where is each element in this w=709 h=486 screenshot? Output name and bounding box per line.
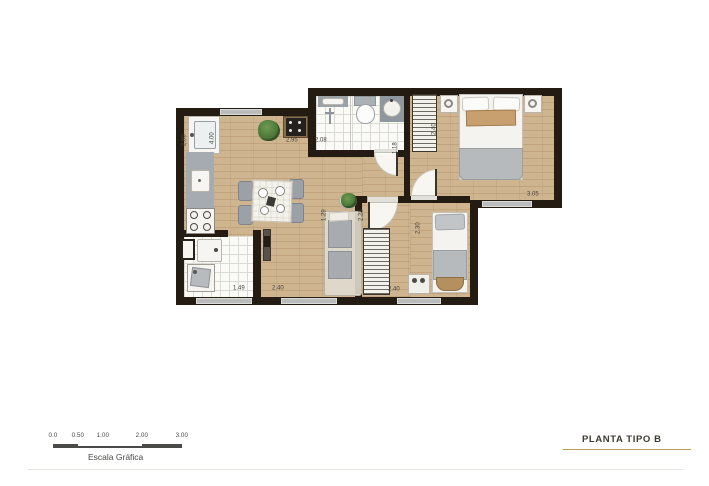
plant-icon: [258, 120, 280, 141]
stove-burner-icon: [203, 211, 211, 219]
title-underline: [563, 449, 691, 450]
bedside-rug: [408, 274, 430, 294]
bed-blanket: [459, 148, 523, 180]
shower-divider: [350, 96, 351, 150]
plan-title: PLANTA TIPO B: [582, 434, 662, 445]
kitchen-knob-icon: [198, 179, 201, 182]
plate-icon: [276, 204, 285, 213]
single-bed-blanket: [433, 250, 467, 280]
wall-bathroom-left: [308, 88, 316, 157]
scale-tick-label: 3.00: [176, 432, 188, 438]
slipper-icon: [420, 278, 425, 283]
dimension-label: 1.29: [321, 209, 328, 221]
dimension-label: 2.40: [272, 285, 284, 292]
pillow-icon: [435, 213, 466, 230]
dimension-label: 2.25: [358, 209, 365, 221]
service-cabinet: [181, 239, 195, 260]
cooktop-burner-icon: [298, 121, 301, 124]
bathroom-door-leaf: [396, 152, 398, 176]
scale-bar-segment: [53, 444, 78, 448]
sofa-cushion: [328, 251, 352, 279]
dimension-label: 1.49: [233, 285, 245, 292]
dimension-label: 2.40: [388, 286, 400, 293]
plate-icon: [275, 186, 285, 196]
single-bed-footboard: [436, 277, 464, 291]
stove-burner-icon: [190, 211, 198, 219]
cooktop-burner-icon: [298, 129, 301, 132]
washer-knob-icon: [193, 270, 197, 274]
master-door-leaf: [435, 169, 437, 196]
plate-icon: [260, 206, 269, 215]
dimension-label: 2.80: [181, 134, 188, 146]
lamp-icon: [444, 99, 453, 108]
kitchen-faucet-icon: [190, 133, 194, 137]
dimension-label: 2.40: [431, 123, 438, 135]
scale-tick-label: 0.0: [48, 432, 57, 438]
scale-bar-segment: [142, 444, 182, 448]
scale-tick-label: 2.00: [136, 432, 148, 438]
floor-plan-page: 2.80 4.00 2.95 2.08 1.18 2.40 3.05 1.29 …: [0, 0, 709, 486]
scale-tick-label: 0.50: [72, 432, 84, 438]
wall-bathroom-bottom-a: [308, 150, 374, 157]
sofa-cushion: [328, 220, 352, 248]
window-living: [281, 298, 337, 304]
dimension-label: 2.30: [415, 222, 422, 234]
dimension-label: 2.95: [286, 137, 298, 144]
stove-burner-icon: [203, 223, 211, 231]
cooktop-burner-icon: [289, 121, 292, 124]
shower-arm-icon: [325, 112, 334, 114]
slipper-icon: [412, 278, 417, 283]
towel-icon: [322, 98, 344, 105]
page-rule: [28, 469, 683, 470]
window-service: [196, 298, 252, 304]
dimension-label: 1.18: [392, 142, 399, 154]
bedroom2-wardrobe: [363, 228, 390, 295]
dimension-label: 2.08: [315, 137, 327, 144]
lamp-icon: [528, 99, 537, 108]
plant-icon: [341, 193, 357, 208]
wall-right-bedroom2: [470, 200, 478, 305]
wall-right-master: [554, 88, 562, 208]
plate-icon: [258, 188, 268, 198]
dining-chair: [238, 181, 253, 201]
laundry-tank: [197, 239, 222, 262]
cooktop-burner-icon: [289, 129, 292, 132]
bathroom-sink-icon: [383, 100, 401, 117]
wall-hall-right: [404, 150, 410, 196]
dimension-label: 3.05: [527, 191, 539, 198]
shower-column-icon: [329, 108, 331, 124]
tv-icon: [264, 236, 270, 247]
dimension-label: 4.00: [209, 132, 216, 144]
scale-caption: Escala Gráfica: [88, 452, 143, 462]
bathroom-faucet-icon: [390, 99, 393, 102]
bed-runner: [466, 110, 516, 127]
tank-faucet-icon: [214, 248, 218, 252]
window-master: [482, 201, 532, 207]
toilet-icon: [356, 104, 375, 124]
wall-service-right: [253, 230, 261, 305]
sofa-backrest: [355, 213, 361, 294]
scale-tick-label: 1.00: [97, 432, 109, 438]
stove-burner-icon: [190, 223, 198, 231]
throw-pillow-icon: [329, 211, 349, 221]
scale-bar-segment: [103, 446, 142, 448]
scale-bar-segment: [78, 446, 103, 448]
wall-bathroom-right: [404, 96, 410, 150]
window-bedroom2: [397, 298, 441, 304]
window-kitchen: [220, 109, 262, 115]
